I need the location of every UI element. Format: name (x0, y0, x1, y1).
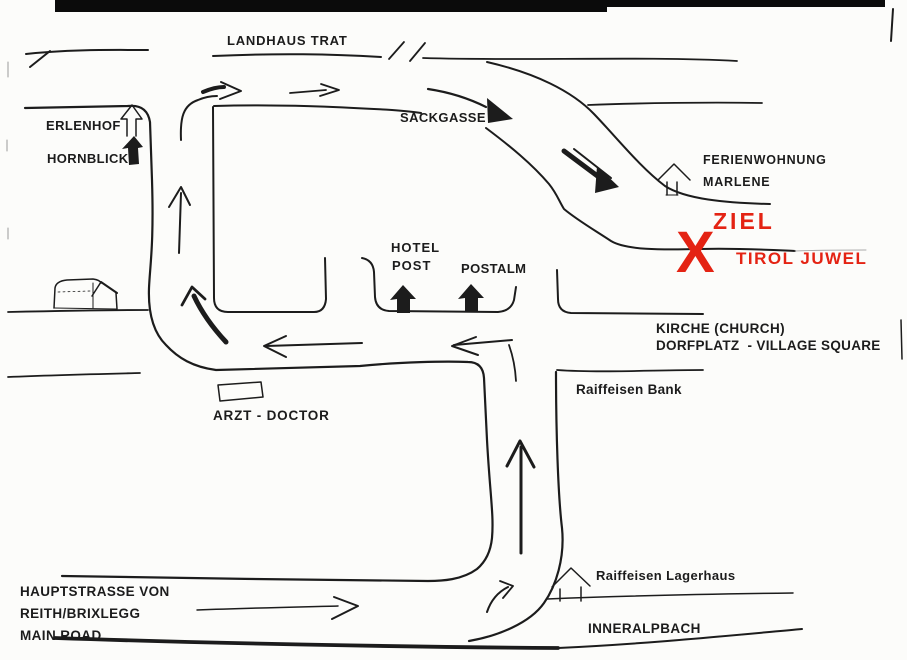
hotel-post-house-icon (390, 285, 416, 313)
route-arrow-top-east (290, 84, 339, 96)
label-ziel: ZIEL (713, 209, 775, 234)
road-lagerhaus-edge (547, 593, 793, 599)
label-raiffeisen-bank: Raiffeisen Bank (576, 383, 682, 398)
label-inneralpbach: INNERALPBACH (588, 622, 701, 637)
route-arrow-up-lower-road (507, 441, 534, 553)
road-edge-barn-lower (8, 373, 140, 377)
label-erlenhof: ERLENHOF (46, 119, 121, 133)
label-sackgasse: SACKGASSE (400, 111, 486, 125)
label-hornblick: HORNBLICK (47, 152, 129, 166)
road-left-loop (25, 106, 493, 581)
scanned-map-page: LANDHAUS TRAT ERLENHOF HORNBLICK SACKGAS… (0, 0, 907, 660)
label-raiffeisen-lagerhaus: Raiffeisen Lagerhaus (596, 569, 736, 583)
scan-tick-top-right (891, 9, 893, 41)
erlenhof-house-icon (121, 105, 142, 136)
label-arzt-doctor: ARZT - DOCTOR (213, 409, 330, 424)
road-bank-edge (557, 370, 703, 371)
road-lower-right-edge (469, 372, 563, 641)
label-landhaus-trat: LANDHAUS TRAT (227, 34, 348, 48)
label-marlene: MARLENE (703, 176, 770, 190)
label-dorfplatz: DORFPLATZ - VILLAGE SQUARE (656, 339, 881, 354)
label-hauptstrasse-1: HAUPTSTRASSE VON (20, 585, 170, 600)
arzt-box (218, 382, 263, 401)
road-centre-block-top (214, 105, 421, 113)
road-edge-barn-upper (8, 310, 148, 312)
route-arrow-main-road-east (197, 597, 358, 619)
route-arrow-curve-up-bold (182, 287, 226, 342)
route-arrow-west-1 (264, 336, 362, 357)
label-hauptstrasse-3: MAIN ROAD (20, 629, 102, 644)
scan-marks-left-edge (7, 62, 8, 239)
route-arrow-sackgasse-2 (564, 149, 619, 193)
route-arrow-west-2 (452, 337, 512, 355)
label-hauptstrasse-2: REITH/BRIXLEGG (20, 607, 140, 622)
label-post: POST (392, 259, 431, 273)
label-postalm: POSTALM (461, 262, 526, 276)
road-landhaus-trat (26, 42, 762, 105)
road-main-bottom-thick (55, 638, 558, 648)
road-centre-block (213, 107, 326, 312)
road-corner-hook (509, 345, 516, 381)
route-arrow-up-left-road (169, 187, 190, 253)
scan-tick-right-mid (901, 320, 902, 359)
label-tirol-juwel: TIROL JUWEL (736, 250, 867, 269)
label-hotel: HOTEL (391, 241, 440, 255)
goal-x-marker: X (676, 224, 715, 282)
label-ferienwohnung: FERIENWOHNUNG (703, 154, 827, 168)
route-arrow-bottom-curve (487, 581, 513, 612)
postalm-house-icon (458, 284, 484, 312)
barn-icon (54, 279, 117, 309)
route-arrow-top-turn-right (181, 82, 241, 140)
label-kirche: KIRCHE (CHURCH) (656, 322, 785, 337)
scan-edge-top-left (55, 0, 607, 12)
scan-edge-top-right (555, 0, 885, 7)
